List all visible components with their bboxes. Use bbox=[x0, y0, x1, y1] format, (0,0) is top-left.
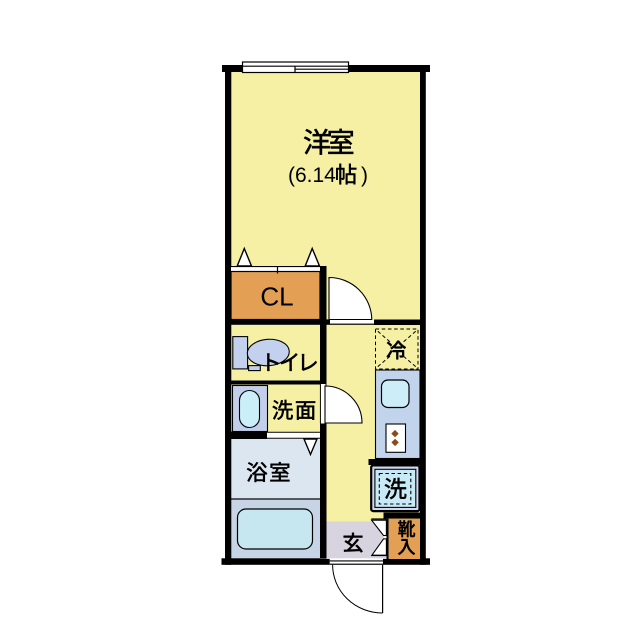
svg-text:(6.14: (6.14 bbox=[288, 164, 336, 187]
svg-text:): ) bbox=[361, 164, 368, 187]
svg-text:CL: CL bbox=[260, 282, 293, 312]
